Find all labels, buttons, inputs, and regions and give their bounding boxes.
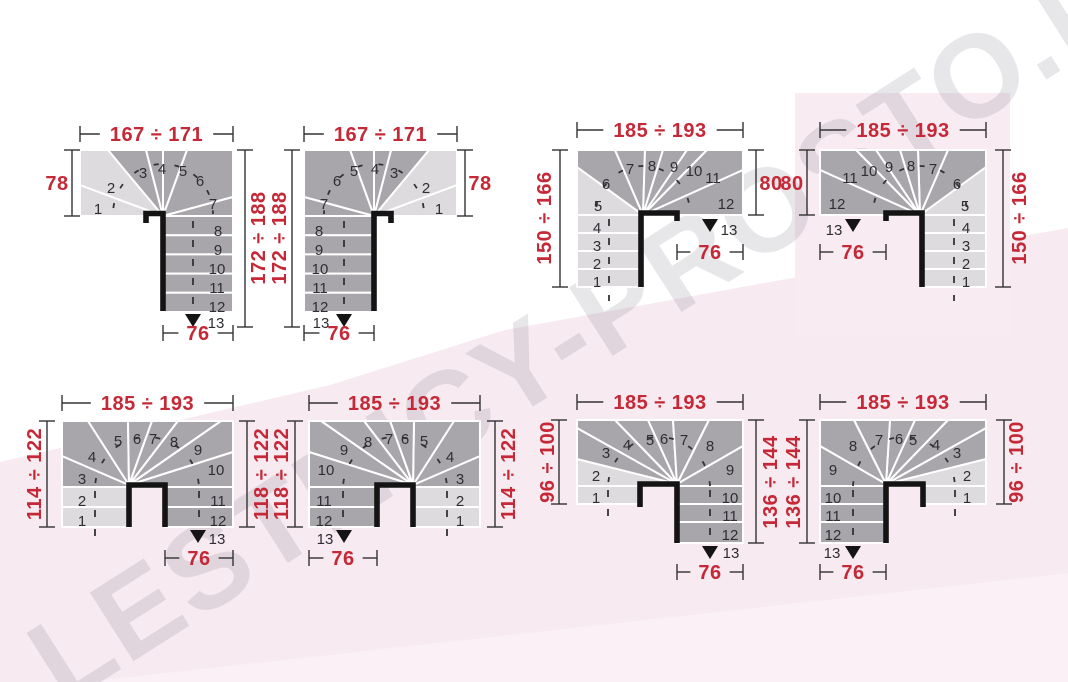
dimension-label: 167 ÷ 171 (334, 124, 427, 146)
dimension-label: 185 ÷ 193 (613, 392, 706, 414)
step-number: 5 (420, 433, 428, 450)
step-number: 1 (963, 490, 971, 507)
dimension-label: 185 ÷ 193 (856, 392, 949, 414)
step-number: 12 (312, 299, 329, 316)
step-number: 9 (670, 159, 678, 176)
step-number: 8 (170, 434, 178, 451)
step-shape (163, 216, 233, 235)
step-number: 1 (435, 201, 443, 218)
step-number: 4 (158, 161, 166, 178)
step-number: 4 (932, 437, 940, 454)
stair-diagram-2: 12345678910111213167 ÷ 1717678172 ÷ 188 (277, 105, 507, 355)
dimension-label: 118 ÷ 122 (271, 428, 293, 520)
step-number: 12 (209, 299, 226, 316)
step-number: 1 (94, 201, 102, 218)
dimension-label: 150 ÷ 166 (1009, 171, 1031, 264)
stair-diagram-4: 12345678910111213185 ÷ 19376150 ÷ 16680 (783, 105, 1033, 310)
dimension-label: 118 ÷ 122 (251, 428, 273, 520)
newel-corner-mark (886, 484, 923, 543)
step-number: 7 (209, 196, 217, 213)
step-number: 4 (962, 220, 970, 237)
exit-arrow-icon (845, 546, 861, 559)
step-number: 9 (340, 442, 348, 459)
newel-corner-mark (146, 214, 163, 312)
step-number: 7 (680, 432, 688, 449)
step-number: 2 (456, 493, 464, 510)
stair-plan: 12345678910111213185 ÷ 1937696 ÷ 100136 … (773, 390, 1023, 625)
step-number: 4 (446, 449, 454, 466)
step-number: 5 (114, 433, 122, 450)
step-number: 3 (456, 471, 464, 488)
dimension-label: 136 ÷ 144 (783, 435, 805, 529)
step-number: 5 (594, 198, 602, 215)
stair-diagram-8: 12345678910111213185 ÷ 1937696 ÷ 100136 … (773, 390, 1023, 625)
step-number: 7 (875, 432, 883, 449)
step-number: 13 (317, 531, 334, 548)
dimension-label: 96 ÷ 100 (1006, 421, 1028, 503)
step-number: 9 (214, 242, 222, 259)
step-number: 9 (726, 462, 734, 479)
step-number: 6 (333, 173, 341, 190)
step-number: 9 (315, 242, 323, 259)
step-number: 8 (214, 223, 222, 240)
dimension-label: 80 (780, 173, 803, 195)
step-number: 1 (456, 513, 464, 530)
dimension-label: 96 ÷ 100 (537, 421, 559, 503)
step-number: 9 (829, 462, 837, 479)
step-number: 6 (133, 431, 141, 448)
step-number: 2 (962, 256, 970, 273)
step-number: 6 (401, 431, 409, 448)
step-number: 12 (316, 513, 333, 530)
dimension-label: 185 ÷ 193 (101, 393, 194, 415)
stair-diagram-3: 12345678910111213185 ÷ 19376150 ÷ 16680 (530, 105, 780, 310)
step-number: 12 (825, 527, 842, 544)
stair-plan: 12345678910111213185 ÷ 19376114 ÷ 122118… (30, 390, 270, 615)
newel-corner-mark (129, 485, 165, 527)
dimension-label: 76 (327, 323, 350, 345)
dimension-label: 185 ÷ 193 (856, 120, 949, 142)
step-number: 2 (422, 180, 430, 197)
stair-plan: 12345678910111213185 ÷ 19376114 ÷ 122118… (272, 390, 512, 615)
step-number: 8 (706, 438, 714, 455)
dimension-label: 114 ÷ 122 (24, 428, 46, 520)
exit-arrow-icon (845, 219, 861, 232)
step-number: 8 (648, 158, 656, 175)
stair-diagram-1: 12345678910111213167 ÷ 1717678172 ÷ 188 (30, 105, 260, 355)
exit-arrow-icon (702, 219, 718, 232)
step-number: 2 (78, 493, 86, 510)
step-number: 11 (722, 508, 738, 525)
step-number: 6 (602, 176, 610, 193)
dimension-label: 172 ÷ 188 (248, 191, 270, 284)
step-number: 12 (829, 196, 846, 213)
step-number: 9 (885, 159, 893, 176)
step-number: 8 (364, 434, 372, 451)
stair-layouts-sheet: LESTNICY-PROSTO.RU 12345678910111213167 … (0, 0, 1068, 682)
dimension-label: 80 (759, 173, 782, 195)
stair-plan: 12345678910111213167 ÷ 1717678172 ÷ 188 (277, 105, 507, 355)
stair-plan: 12345678910111213185 ÷ 19376150 ÷ 16680 (530, 105, 780, 310)
step-number: 11 (312, 280, 328, 297)
step-number: 6 (895, 431, 903, 448)
step-number: 3 (390, 165, 398, 182)
step-number: 5 (909, 432, 917, 449)
step-number: 3 (953, 445, 961, 462)
step-number: 10 (861, 163, 878, 180)
step-number: 11 (210, 493, 226, 510)
dimension-label: 76 (841, 242, 864, 264)
stair-diagram-7: 12345678910111213185 ÷ 1937696 ÷ 100136 … (540, 390, 790, 625)
step-number: 8 (849, 438, 857, 455)
stair-diagram-5: 12345678910111213185 ÷ 19376114 ÷ 122118… (30, 390, 270, 615)
step-number: 4 (623, 437, 631, 454)
newel-corner-mark (374, 214, 391, 312)
dimension-label: 185 ÷ 193 (348, 393, 441, 415)
step-number: 13 (208, 315, 225, 332)
step-number: 2 (107, 180, 115, 197)
stair-plan: 12345678910111213167 ÷ 1717678172 ÷ 188 (30, 105, 260, 355)
step-number: 6 (953, 176, 961, 193)
dimension-label: 172 ÷ 188 (269, 191, 291, 284)
step-number: 6 (196, 173, 204, 190)
step-number: 5 (179, 163, 187, 180)
stair-plan: 12345678910111213185 ÷ 1937696 ÷ 100136 … (540, 390, 790, 625)
step-number: 6 (660, 431, 668, 448)
dimension-label: 76 (187, 548, 210, 570)
stair-diagram-6: 12345678910111213185 ÷ 19376114 ÷ 122118… (272, 390, 512, 615)
step-number: 7 (320, 196, 328, 213)
step-shape (163, 235, 233, 254)
step-number: 5 (961, 198, 969, 215)
dimension-label: 114 ÷ 122 (498, 428, 520, 520)
step-number: 11 (209, 280, 225, 297)
dimension-label: 78 (468, 173, 491, 195)
step-number: 4 (593, 220, 601, 237)
step-number: 13 (209, 531, 226, 548)
step-number: 1 (78, 513, 86, 530)
newel-corner-mark (886, 213, 922, 287)
dimension-label: 76 (698, 562, 721, 584)
dimension-label: 150 ÷ 166 (534, 171, 556, 264)
step-number: 10 (686, 163, 703, 180)
step-number: 10 (318, 462, 335, 479)
step-number: 10 (209, 261, 226, 278)
step-number: 3 (593, 238, 601, 255)
exit-arrow-icon (702, 546, 718, 559)
step-number: 1 (592, 490, 600, 507)
step-number: 11 (705, 170, 721, 187)
step-number: 5 (646, 432, 654, 449)
step-number: 2 (963, 468, 971, 485)
step-number: 13 (723, 545, 740, 562)
step-number: 12 (718, 196, 735, 213)
dimension-label: 76 (186, 323, 209, 345)
step-number: 7 (385, 431, 393, 448)
exit-arrow-icon (336, 530, 352, 543)
step-number: 1 (593, 274, 601, 291)
newel-corner-mark (377, 485, 413, 527)
step-number: 1 (962, 274, 970, 291)
step-number: 11 (842, 170, 858, 187)
step-number: 3 (78, 471, 86, 488)
step-number: 12 (722, 527, 739, 544)
step-number: 5 (350, 163, 358, 180)
step-number: 3 (139, 165, 147, 182)
step-number: 10 (825, 490, 842, 507)
step-number: 4 (371, 161, 379, 178)
dimension-label: 185 ÷ 193 (613, 120, 706, 142)
step-number: 3 (602, 445, 610, 462)
stair-plan: 12345678910111213185 ÷ 19376150 ÷ 16680 (783, 105, 1033, 310)
dimension-label: 78 (45, 173, 68, 195)
newel-corner-mark (640, 484, 677, 543)
step-number: 11 (316, 493, 332, 510)
step-number: 11 (825, 508, 841, 525)
step-number: 7 (149, 431, 157, 448)
step-number: 13 (826, 222, 843, 239)
dimension-label: 167 ÷ 171 (110, 124, 203, 146)
step-number: 10 (722, 490, 739, 507)
dimension-label: 76 (331, 548, 354, 570)
step-number: 7 (626, 161, 634, 178)
step-number: 10 (312, 261, 329, 278)
step-number: 2 (593, 256, 601, 273)
newel-corner-mark (641, 213, 677, 287)
step-number: 9 (194, 442, 202, 459)
dimension-label: 76 (698, 242, 721, 264)
step-number: 12 (210, 513, 227, 530)
step-number: 10 (208, 462, 225, 479)
step-number: 8 (907, 158, 915, 175)
exit-arrow-icon (190, 530, 206, 543)
step-number: 4 (88, 449, 96, 466)
dimension-label: 76 (841, 562, 864, 584)
step-number: 7 (929, 161, 937, 178)
step-number: 8 (315, 223, 323, 240)
step-number: 2 (592, 468, 600, 485)
step-number: 3 (962, 238, 970, 255)
step-number: 13 (721, 222, 738, 239)
step-number: 13 (824, 545, 841, 562)
